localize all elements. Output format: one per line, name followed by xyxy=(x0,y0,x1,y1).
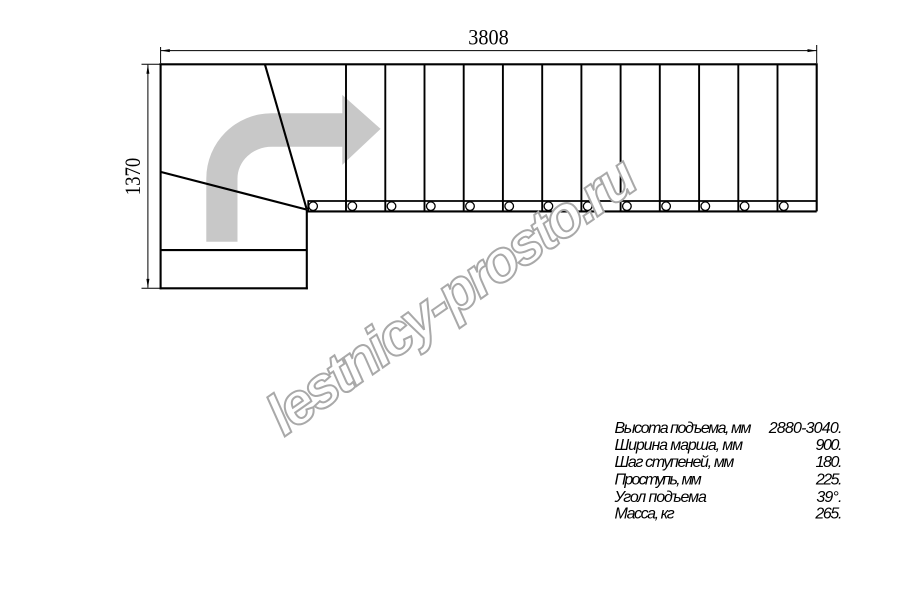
svg-text:225.: 225. xyxy=(815,472,843,489)
svg-text:Угол подъема: Угол подъема xyxy=(614,489,707,506)
svg-text:265.: 265. xyxy=(814,505,842,522)
svg-text:1370: 1370 xyxy=(120,158,145,196)
svg-text:2880-3040.: 2880-3040. xyxy=(768,420,843,437)
svg-text:39°.: 39°. xyxy=(816,489,842,506)
svg-text:Масса, кг: Масса, кг xyxy=(615,505,675,522)
svg-text:900.: 900. xyxy=(816,437,843,454)
svg-text:Проступь, мм: Проступь, мм xyxy=(615,472,702,489)
svg-text:180.: 180. xyxy=(816,454,843,471)
svg-text:3808: 3808 xyxy=(468,25,509,50)
svg-text:Шаг ступеней, мм: Шаг ступеней, мм xyxy=(615,454,735,471)
svg-text:Ширина марша, мм: Ширина марша, мм xyxy=(615,437,744,454)
svg-text:Высота подъема, мм: Высота подъема, мм xyxy=(615,420,752,437)
